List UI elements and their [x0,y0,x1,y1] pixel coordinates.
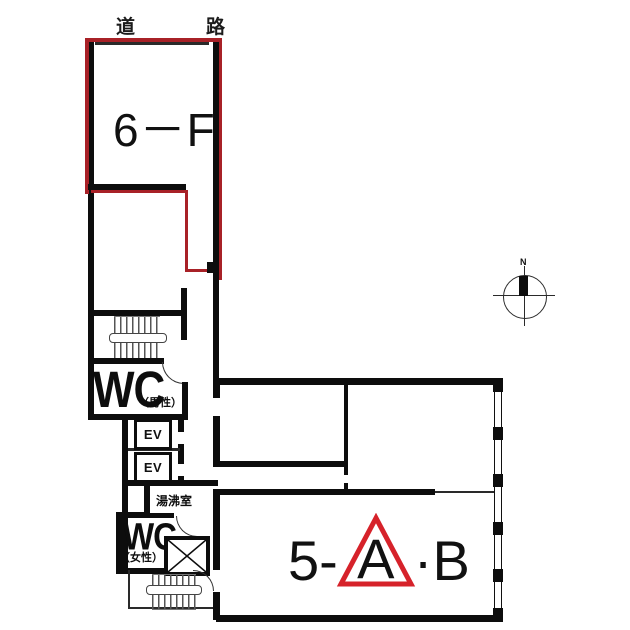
unit-6f-outline-right [219,38,222,280]
window-mullion [493,522,503,535]
room-5ab-separator: · [414,533,433,589]
room-5ab-label: 5- A · B [288,513,470,589]
room-5ab-a: A [357,531,394,589]
room-5ab-prefix: 5- [288,533,338,589]
room-6f-label: 6－F [113,94,216,160]
door-arc-kitchenette [176,516,197,537]
compass-north-bar [519,276,528,296]
elevator-2-label: EV [144,460,162,475]
wall-inner-room-bottom [216,461,348,467]
room-5ab-suffix: B [432,533,469,589]
wall-hook [207,262,213,273]
window-mullion [493,378,503,392]
wall-top [95,42,209,45]
wall-right-block-top [213,378,503,385]
wall-5ab-left [213,489,220,570]
kitchenette-label: 湯沸室 [156,492,192,509]
unit-6f-outline-top [85,38,222,42]
duct-shaft-x-icon [164,536,210,576]
stairs-lower-enclosure-left [128,570,130,608]
door-arc-wc-men [162,362,184,384]
wall-kitchenette-top [122,480,218,486]
window-mullion [493,569,503,582]
wc-women-sublabel: （女性） [119,549,163,565]
wall-stair-right [181,310,187,340]
unit-6f-outline-divider [91,190,188,193]
wc-men-label: WC [93,362,164,420]
wall-5ab-top-thin [435,491,497,493]
wall-inner-room-right [344,385,348,475]
elevator-1: EV [134,419,172,450]
window-mullion [493,608,503,622]
stairs-upper-handrail [109,333,167,343]
floor-plan: 道 路 6－F WC （男性） EV EV 湯沸室 WC （女性） [0,0,630,630]
compass-crosshair-v [524,266,525,326]
wall-right-block-left-2 [213,416,220,467]
unit-6f-outline-inner-vert [185,190,188,272]
window-wall [494,382,502,618]
wc-men-sublabel: （男性） [138,394,182,410]
elevator-2: EV [134,452,172,483]
road-label: 道 路 [116,12,251,39]
room-5ab-highlight: A [336,513,416,589]
elevator-1-label: EV [144,427,162,442]
wall-right-block-bottom [216,615,502,622]
wall-5ab-top-thick [213,489,435,495]
wall-wcm-right [182,382,188,418]
window-mullion [493,427,503,440]
unit-6f-outline-left [85,38,89,194]
wall-right-block-left-1 [213,378,220,398]
door-arc-5ab [193,570,214,591]
wall-ev-right-2 [178,444,184,464]
wall-ev-right-1 [178,414,184,432]
window-mullion [493,474,503,487]
